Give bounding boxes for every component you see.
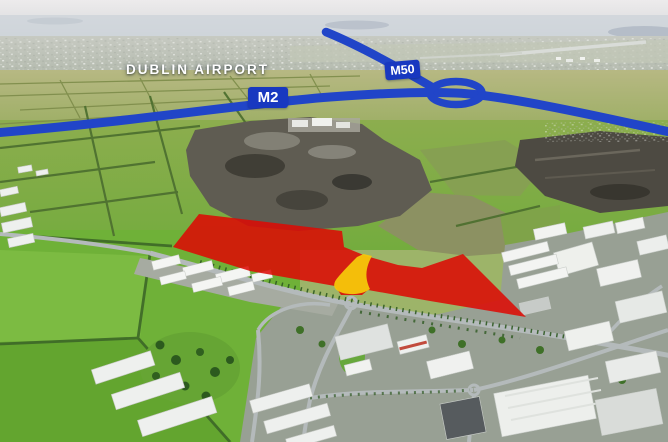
m50-road-badge: M50: [384, 60, 420, 81]
aerial-photo: [0, 0, 668, 442]
m2-road-badge: M2: [248, 87, 288, 108]
aerial-site-map: DUBLIN AIRPORT M2 M50: [0, 0, 668, 442]
dublin-airport-label: DUBLIN AIRPORT: [126, 62, 269, 77]
